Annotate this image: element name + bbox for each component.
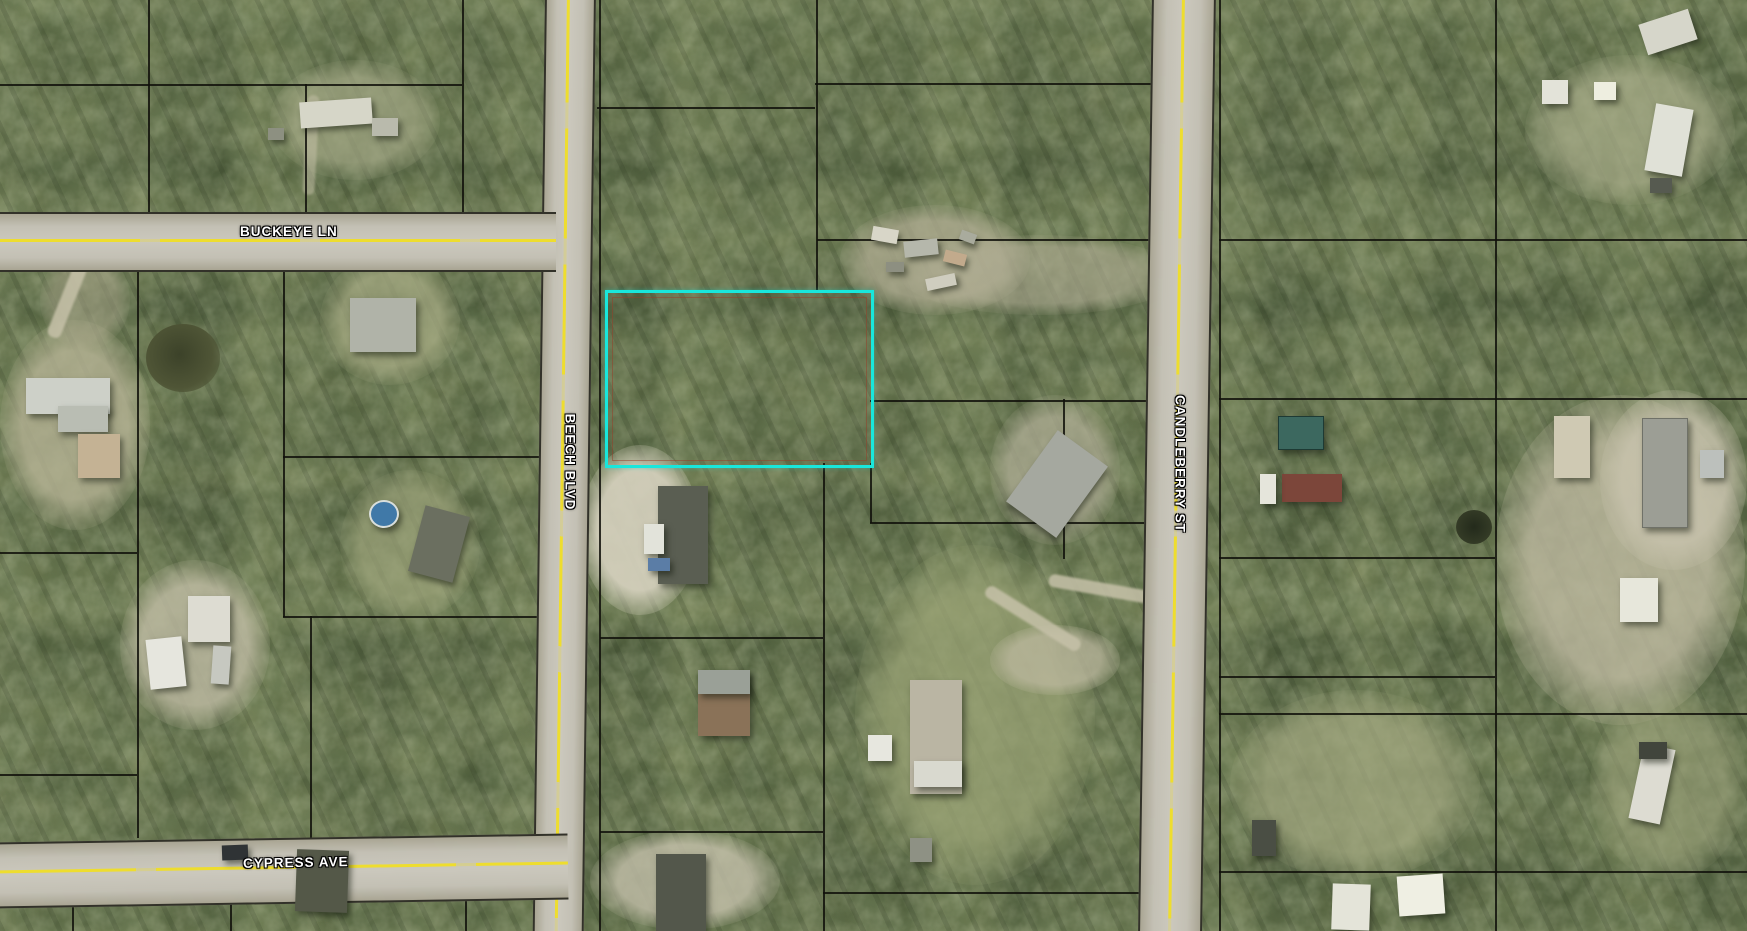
road-centerline: [1168, 0, 1185, 931]
road-buckeye-ln: [0, 212, 556, 272]
building-pad: [1554, 416, 1590, 478]
trailer: [1260, 474, 1276, 504]
building: [78, 434, 120, 478]
small-pond: [1456, 510, 1492, 544]
swimming-pool: [369, 500, 399, 528]
debris: [886, 262, 904, 272]
car: [222, 845, 249, 861]
building: [350, 298, 416, 352]
selected-parcel-survey-line: [612, 297, 867, 461]
shed: [868, 735, 892, 761]
carport: [644, 524, 664, 554]
building: [1642, 418, 1688, 528]
building: [58, 406, 108, 432]
car: [1639, 742, 1667, 759]
building: [1397, 873, 1446, 916]
building: [1278, 416, 1324, 450]
building: [1282, 474, 1342, 502]
pond: [146, 324, 220, 392]
road-cypress-ave: [0, 834, 568, 909]
building: [268, 128, 284, 140]
building: [295, 849, 349, 913]
road-centerline: [555, 0, 570, 931]
building: [656, 854, 706, 931]
building: [1620, 578, 1658, 622]
building: [698, 670, 750, 694]
building: [372, 118, 398, 136]
car: [1650, 178, 1672, 193]
building: [914, 761, 962, 787]
building: [145, 636, 186, 689]
blue-tarp: [648, 558, 670, 571]
shed: [1542, 80, 1568, 104]
car: [1700, 450, 1724, 478]
shed: [1594, 82, 1616, 100]
building: [299, 98, 373, 129]
building: [188, 596, 230, 642]
map-canvas[interactable]: BUCKEYE LN CYPRESS AVE BEECH BLVD CANDLE…: [0, 0, 1747, 931]
shed: [910, 838, 932, 862]
road-centerline: [0, 239, 556, 242]
road-centerline: [0, 862, 568, 874]
selected-parcel-outline[interactable]: [605, 290, 874, 468]
building: [211, 645, 232, 684]
building: [1331, 883, 1371, 930]
cars: [1252, 820, 1276, 856]
